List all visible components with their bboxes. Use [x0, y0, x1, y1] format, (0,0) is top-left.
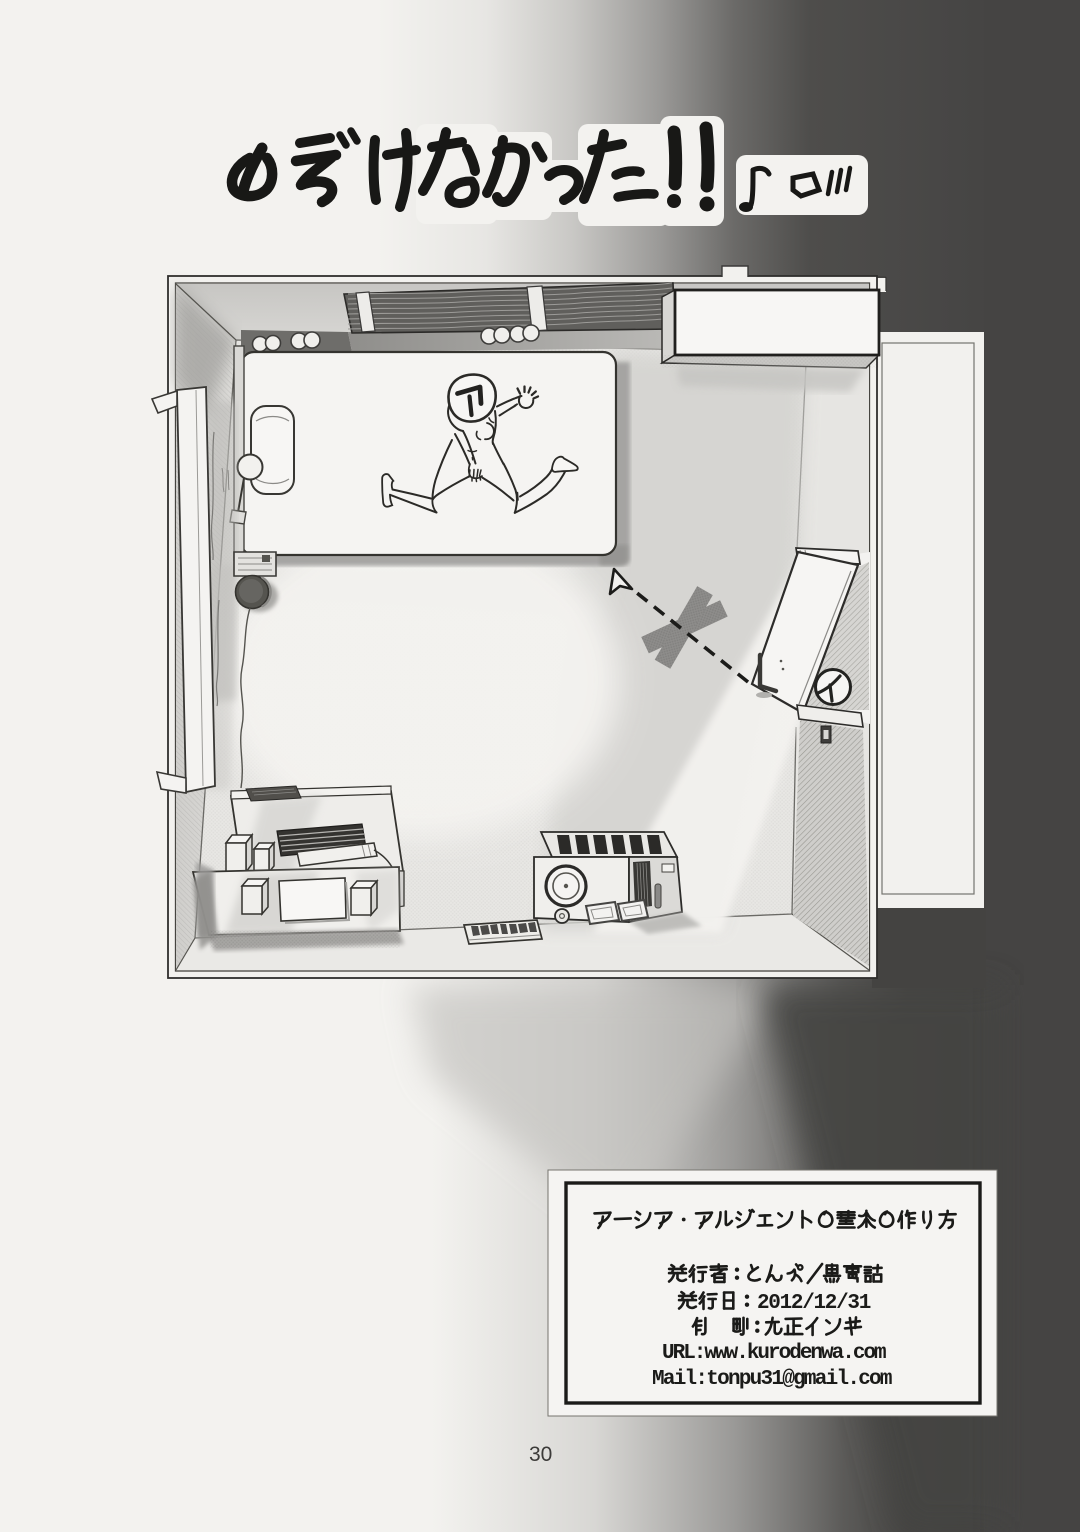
- svg-text:2012/12/31: 2012/12/31: [757, 1292, 871, 1315]
- svg-text:URL:www.kurodenwa.com: URL:www.kurodenwa.com: [662, 1342, 886, 1365]
- svg-text:Mail:tonpu31@gmail.com: Mail:tonpu31@gmail.com: [652, 1368, 892, 1391]
- svg-text:30: 30: [529, 1443, 552, 1466]
